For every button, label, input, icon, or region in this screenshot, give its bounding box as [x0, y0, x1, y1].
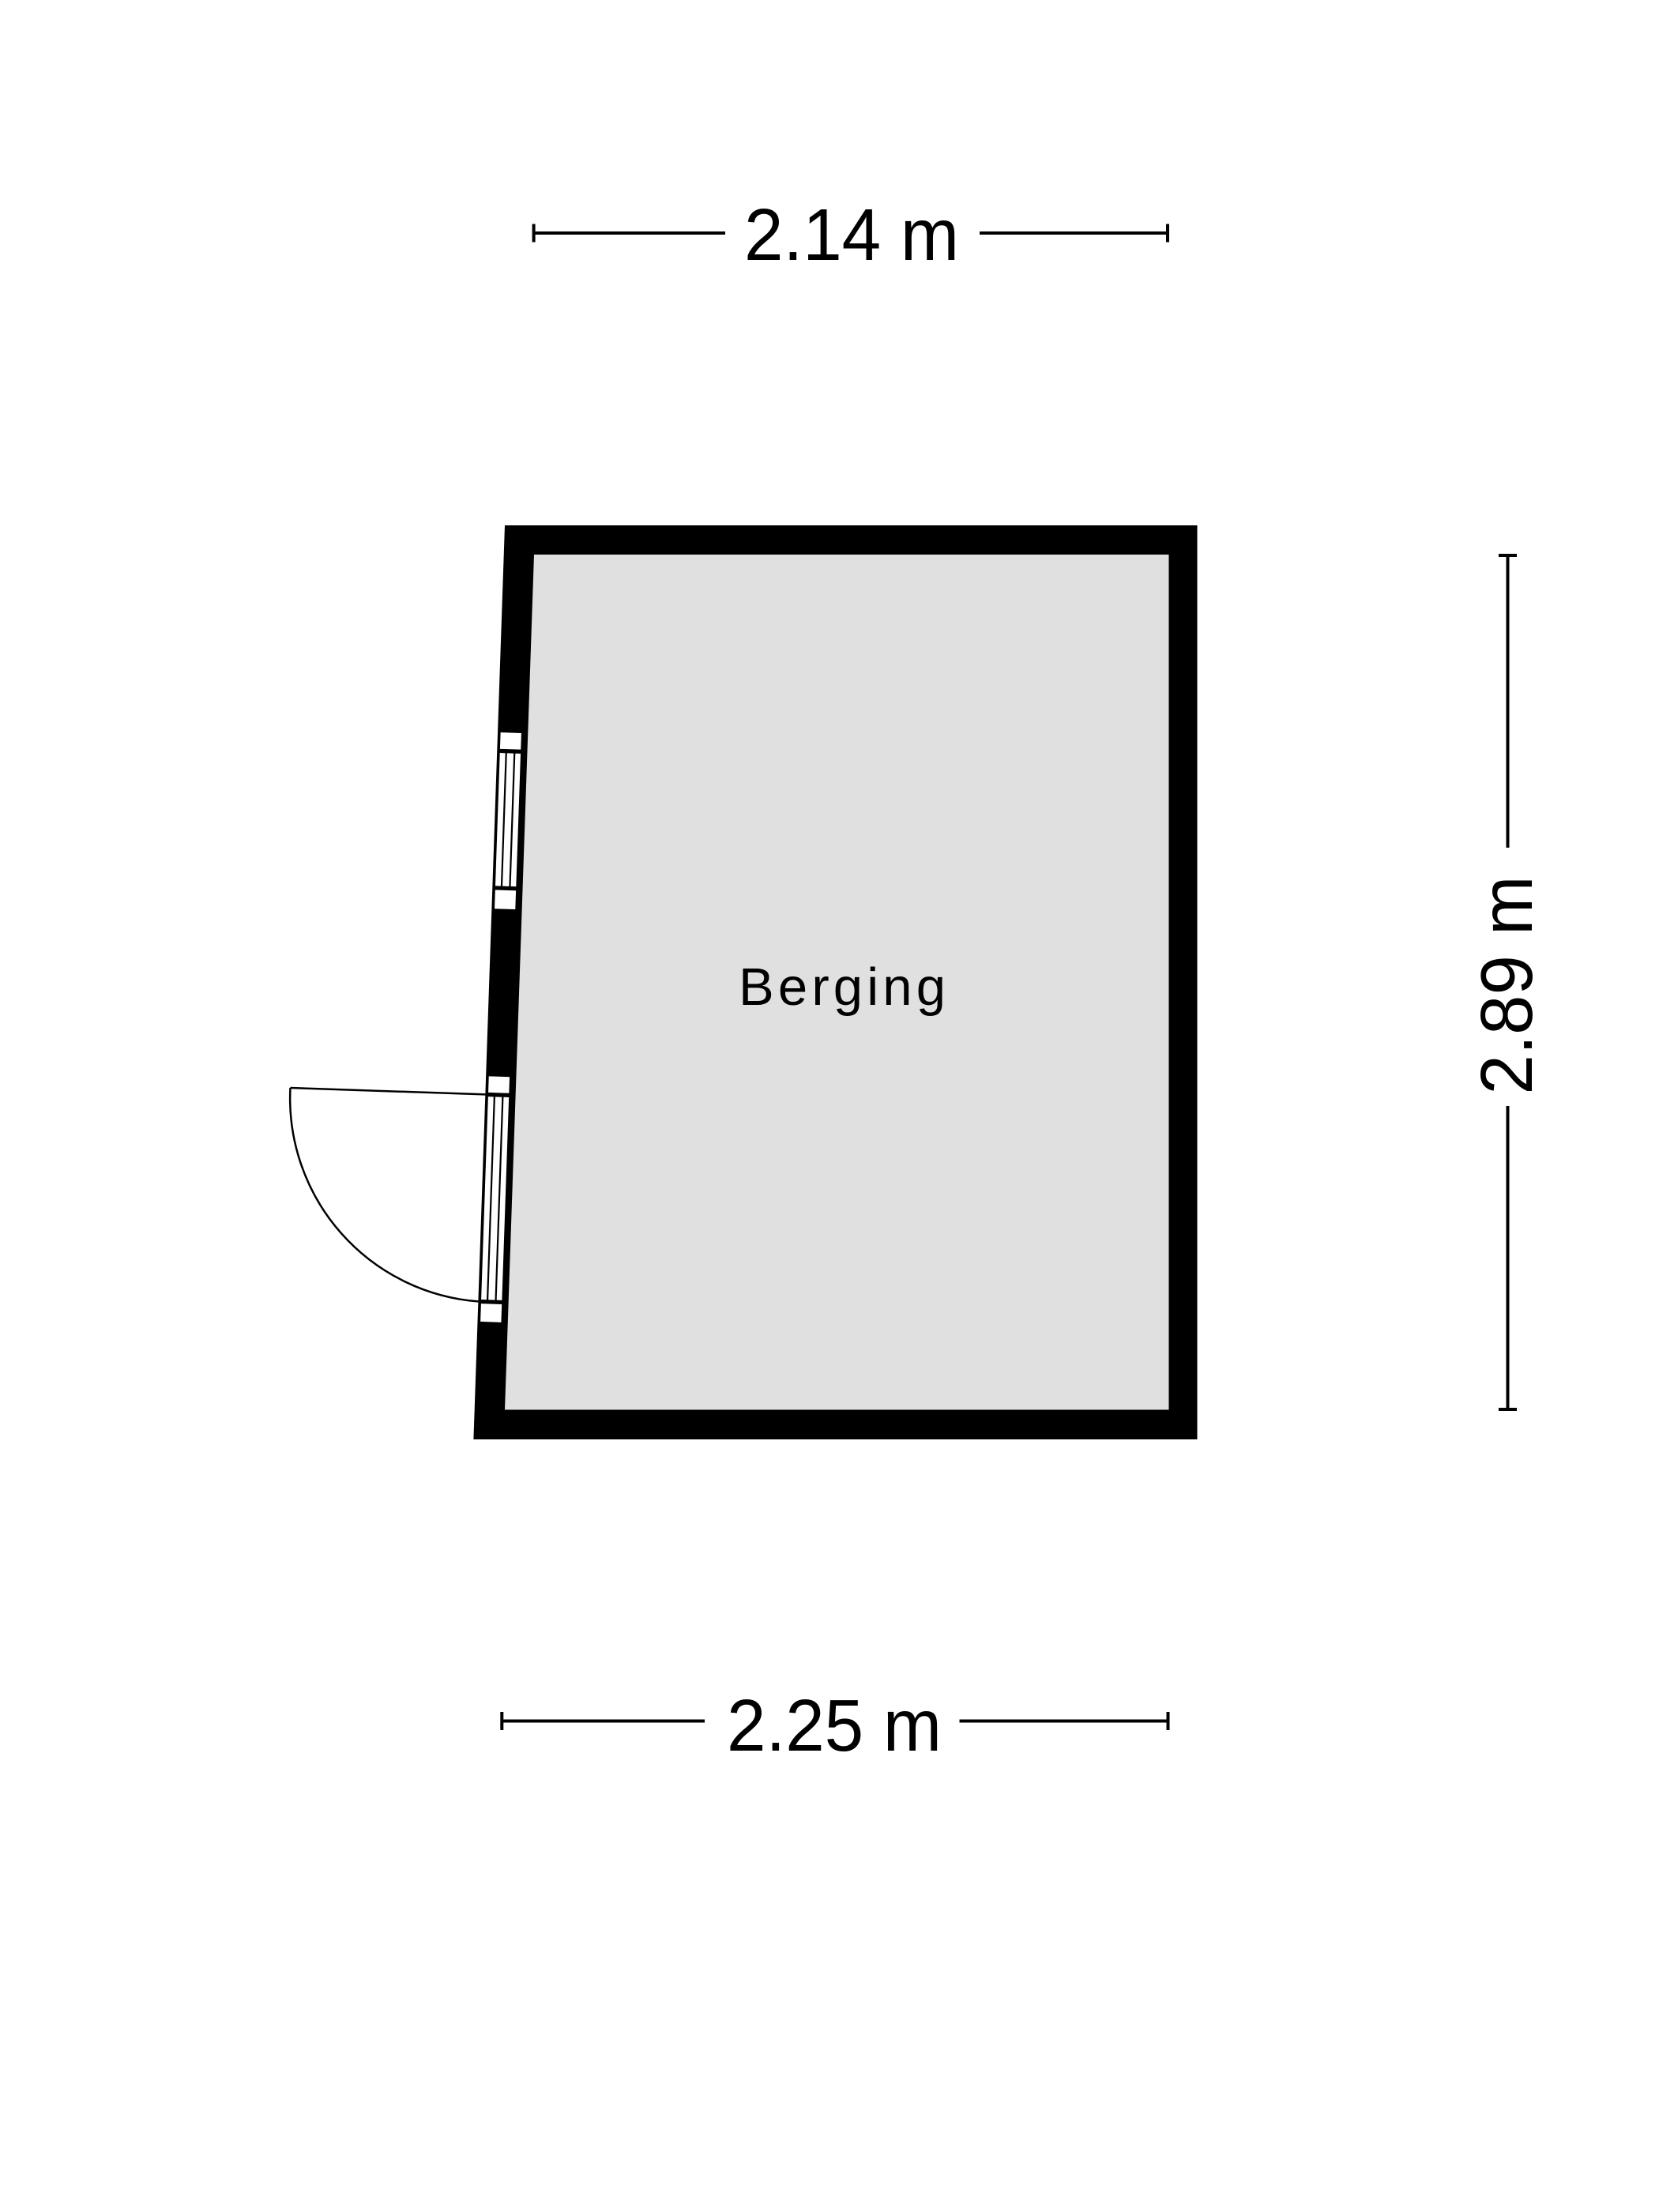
svg-text:2.25 m: 2.25 m [727, 1684, 942, 1766]
svg-text:2.89 m: 2.89 m [1465, 876, 1548, 1095]
svg-text:2.14 m: 2.14 m [744, 194, 959, 276]
